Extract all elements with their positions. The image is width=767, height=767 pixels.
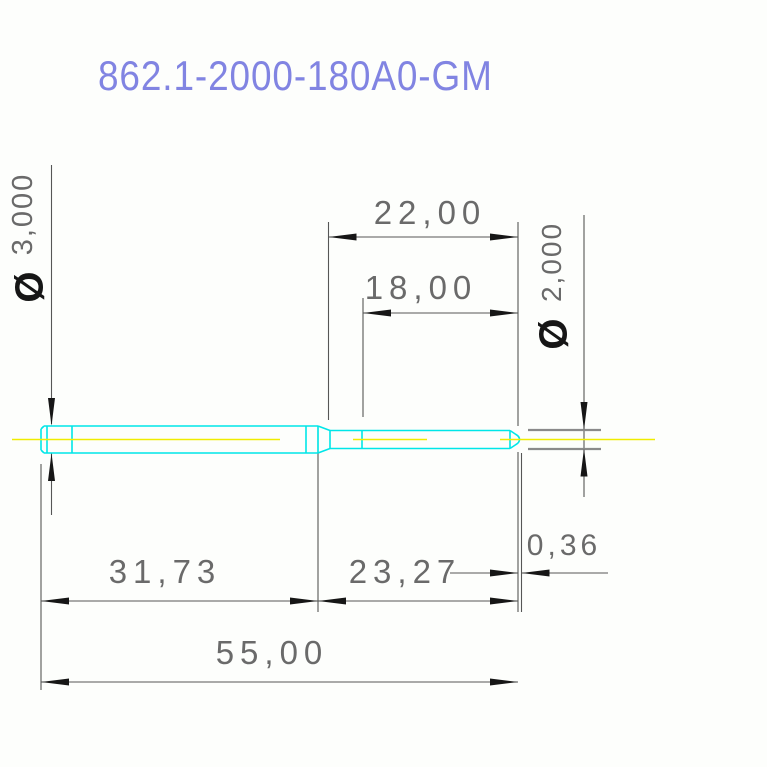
dim-label-22: 22,00	[330, 196, 530, 229]
dim-label-18: 18,00	[321, 271, 521, 304]
diameter-symbol-icon: Ø	[532, 312, 576, 356]
dim-label-23-27: 23,27	[305, 555, 505, 588]
cad-drawing-canvas: 862.1-2000-180A0-GM 22,00 18,00 31,73 23…	[0, 0, 767, 767]
drawing-geometry	[0, 0, 767, 767]
dim-label-0-36: 0,36	[514, 529, 614, 562]
drawing-title: 862.1-2000-180A0-GM	[98, 55, 520, 97]
dim-label-55: 55,00	[172, 636, 372, 669]
dim-label-dia2-value: 2,000	[537, 192, 567, 332]
dim-label-31-73: 31,73	[65, 555, 265, 588]
diameter-symbol-icon: Ø	[8, 265, 52, 309]
dim-label-dia3-value: 3,000	[8, 144, 38, 284]
